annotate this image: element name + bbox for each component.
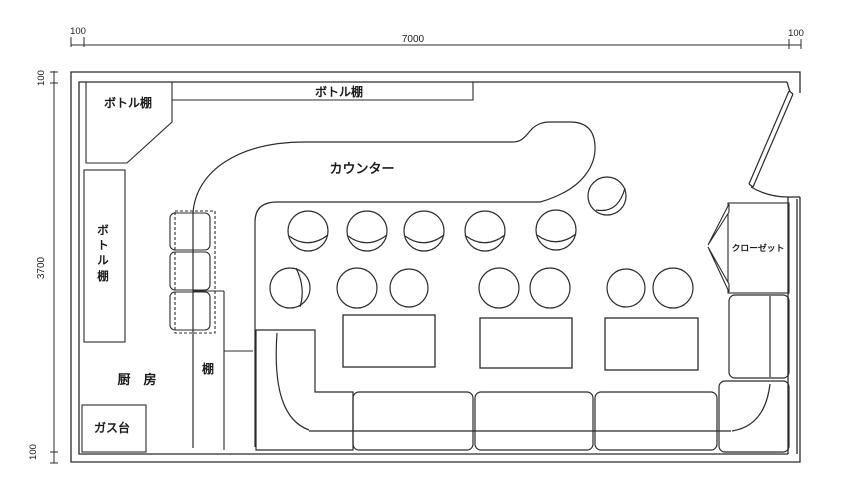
- sofa-corner-left: [256, 330, 353, 450]
- dim-top-left: 100: [70, 26, 86, 37]
- stool: [347, 211, 387, 251]
- under-counter-dashed-outline: [175, 211, 215, 333]
- wall-doorjamb-step: [787, 82, 790, 92]
- label-gas-stove: ガス台: [94, 420, 130, 435]
- table: [605, 318, 698, 370]
- sofa-segment: [475, 392, 593, 450]
- sofa-segment: [595, 392, 717, 450]
- sofa-corner-right-seam: [732, 384, 770, 431]
- closet-door-leaf: [708, 204, 729, 245]
- label-bottle-shelf-top: ボトル棚: [315, 84, 363, 99]
- sofa-segment: [353, 392, 473, 450]
- label-kitchen: 厨 房: [117, 372, 156, 387]
- chair: [390, 269, 428, 307]
- chair: [270, 268, 310, 308]
- chair-back: [296, 268, 302, 307]
- stool-back: [405, 235, 444, 243]
- counter-stools: [288, 177, 626, 251]
- entrance-door: [749, 91, 793, 197]
- chair: [337, 268, 377, 308]
- stool: [288, 211, 328, 251]
- dim-top-span: 7000: [402, 34, 425, 45]
- stool-back: [537, 234, 576, 242]
- dim-left-bottom: 100: [28, 444, 39, 460]
- floor-plan: 100 7000 100 100 3700 100 ボトル棚 ボトル棚 カウンタ…: [0, 0, 853, 501]
- table: [343, 315, 435, 367]
- dim-left-span: 3700: [36, 256, 47, 279]
- left-dim-line: [50, 71, 58, 463]
- chair: [653, 268, 693, 308]
- label-shelf: 棚: [202, 361, 214, 376]
- sofa-right-bench: [729, 295, 789, 378]
- stool: [465, 211, 505, 251]
- label-closet: クローゼット: [732, 242, 785, 253]
- chair: [530, 268, 570, 308]
- floor-plan-drawing: 100 7000 100 100 3700 100 ボトル棚 ボトル棚 カウンタ…: [0, 0, 853, 501]
- top-dim-line: [71, 37, 801, 49]
- door-leaf: [749, 91, 793, 187]
- under-counter-unit: [170, 252, 210, 290]
- stool-back: [348, 235, 387, 243]
- table-chairs: [270, 268, 693, 308]
- dim-top-right: 100: [788, 28, 804, 39]
- tables: [343, 315, 698, 370]
- closet-door-leaf: [708, 247, 729, 292]
- chair: [607, 269, 645, 307]
- table: [480, 318, 572, 368]
- dimension-lines: [50, 37, 801, 463]
- bottle-shelf-topleft-outline: [86, 82, 172, 163]
- under-counter-unit: [170, 292, 210, 330]
- door-swing-arc: [751, 187, 788, 197]
- stool: [404, 211, 444, 251]
- dim-left-top: 100: [36, 70, 47, 86]
- chair: [479, 268, 519, 308]
- wall-inner: [79, 82, 788, 454]
- sofa-corner-right: [719, 381, 789, 452]
- label-bottle-shelf-topleft: ボトル棚: [104, 95, 152, 110]
- wall-right-channel: [788, 197, 800, 454]
- label-bottle-shelf-left: ボトル棚: [96, 224, 110, 285]
- label-counter: カウンター: [329, 161, 394, 176]
- stool-back: [596, 188, 625, 211]
- walls: [71, 72, 800, 462]
- wall-outer: [71, 72, 800, 462]
- stool-back: [466, 235, 505, 243]
- sofa-corner-left-seam: [276, 333, 309, 430]
- stool-back: [289, 235, 328, 243]
- under-counter-unit: [170, 213, 210, 250]
- stool: [536, 210, 576, 250]
